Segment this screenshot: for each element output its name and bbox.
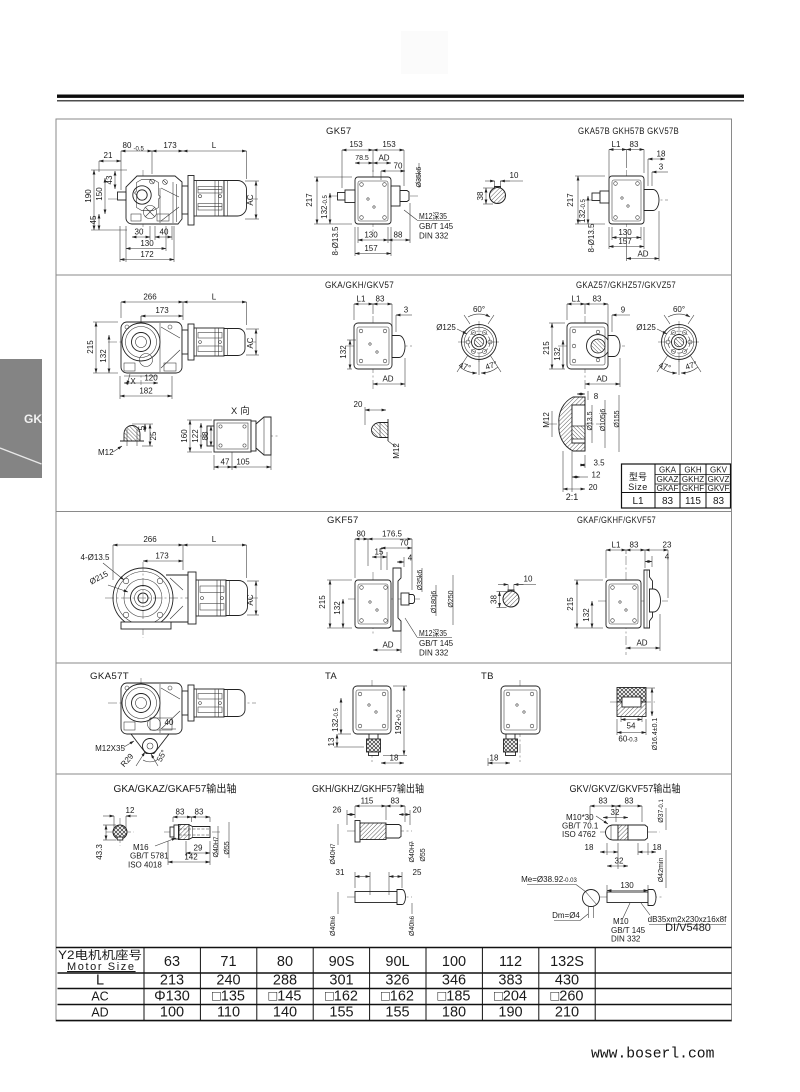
svg-text:Motor Size: Motor Size	[67, 961, 136, 973]
svg-text:M12: M12	[392, 443, 401, 459]
svg-text:GKA: GKA	[659, 466, 677, 475]
svg-text:Ø40H7: Ø40H7	[213, 836, 220, 858]
svg-text:Size: Size	[628, 482, 648, 492]
svg-text:GKA/GKAZ/GKAF57输出轴: GKA/GKAZ/GKAF57输出轴	[114, 782, 237, 795]
svg-text:83: 83	[662, 496, 674, 507]
svg-text:Ø42min: Ø42min	[658, 858, 665, 883]
svg-text:301: 301	[329, 973, 353, 989]
svg-text:326: 326	[385, 973, 409, 989]
svg-text:Ø35k6: Ø35k6	[417, 570, 424, 591]
svg-text:X 向: X 向	[231, 405, 250, 417]
svg-text:15: 15	[375, 548, 384, 557]
svg-text:25: 25	[413, 868, 422, 877]
svg-text:L: L	[212, 293, 217, 302]
svg-text:GKAF: GKAF	[657, 484, 679, 493]
svg-text:M12X35: M12X35	[95, 744, 125, 753]
svg-text:157: 157	[618, 237, 632, 246]
svg-text:5: 5	[138, 425, 147, 430]
svg-text:132: 132	[582, 608, 591, 622]
svg-text:173: 173	[155, 552, 169, 561]
svg-text:GKAZ57/GKHZ57/GKVZ57: GKAZ57/GKHZ57/GKVZ57	[576, 280, 676, 291]
svg-text:31: 31	[336, 868, 345, 877]
svg-text:Ø125: Ø125	[436, 323, 456, 332]
svg-text:AD: AD	[378, 154, 389, 163]
svg-text:L: L	[212, 535, 217, 544]
svg-text:TA: TA	[325, 671, 337, 682]
svg-text:83: 83	[376, 295, 385, 304]
svg-text:Ø35k6: Ø35k6	[416, 167, 423, 188]
svg-text:80: 80	[277, 954, 293, 970]
svg-text:DIN 332: DIN 332	[611, 935, 641, 944]
svg-text:20: 20	[589, 483, 598, 492]
svg-text:240: 240	[216, 973, 240, 989]
svg-text:Ø37-0.1: Ø37-0.1	[658, 799, 665, 823]
svg-text:18: 18	[657, 150, 666, 159]
svg-text:GKVF: GKVF	[708, 484, 730, 493]
svg-text:L1: L1	[572, 295, 581, 304]
svg-text:12: 12	[126, 806, 135, 815]
svg-text:GKA/GKH/GKV57: GKA/GKH/GKV57	[325, 280, 394, 291]
svg-text:172: 172	[140, 250, 154, 259]
svg-text:2:1: 2:1	[566, 492, 579, 502]
svg-text:ISO 4018: ISO 4018	[128, 861, 162, 870]
svg-text:173: 173	[163, 141, 177, 150]
svg-text:4-Ø13.5: 4-Ø13.5	[81, 553, 110, 562]
svg-text:10: 10	[510, 171, 519, 180]
svg-text:18: 18	[585, 843, 594, 852]
svg-text:32: 32	[615, 857, 624, 866]
svg-text:Ø105j6: Ø105j6	[600, 409, 607, 432]
svg-text:115: 115	[685, 496, 701, 507]
svg-text:88: 88	[201, 431, 210, 440]
svg-text:3: 3	[404, 306, 409, 315]
svg-text:AD: AD	[91, 1006, 108, 1020]
svg-text:20: 20	[354, 400, 363, 409]
svg-text:43.3: 43.3	[95, 844, 104, 860]
svg-text:AC: AC	[246, 194, 255, 205]
svg-text:AC: AC	[246, 337, 255, 348]
svg-text:型号: 型号	[629, 472, 647, 482]
svg-text:13: 13	[327, 737, 336, 746]
svg-text:215: 215	[542, 341, 551, 355]
svg-text:M12: M12	[98, 448, 114, 457]
svg-text:88: 88	[394, 231, 403, 240]
svg-text:182: 182	[139, 387, 153, 396]
svg-text:3.5: 3.5	[593, 459, 605, 468]
svg-text:Ø125: Ø125	[636, 323, 656, 332]
svg-text:153: 153	[349, 140, 363, 149]
svg-text:70: 70	[394, 162, 403, 171]
svg-text:4: 4	[408, 554, 413, 563]
svg-text:160: 160	[180, 429, 189, 443]
svg-text:L1: L1	[632, 496, 644, 507]
svg-text:-0.5: -0.5	[134, 147, 145, 153]
svg-text:266: 266	[143, 535, 157, 544]
svg-text:90L: 90L	[385, 954, 409, 970]
svg-text:DIN 332: DIN 332	[419, 649, 449, 658]
svg-text:8-Ø13.5: 8-Ø13.5	[587, 223, 596, 252]
svg-text:Ø40H7: Ø40H7	[330, 843, 337, 865]
svg-text:346: 346	[442, 973, 466, 989]
svg-text:21: 21	[104, 151, 113, 160]
svg-text:155: 155	[385, 1005, 409, 1021]
svg-text:AD: AD	[382, 641, 393, 650]
svg-text:54: 54	[627, 722, 636, 731]
svg-text:105: 105	[236, 458, 250, 467]
svg-text:122: 122	[191, 429, 200, 443]
svg-text:Ø55: Ø55	[420, 848, 427, 861]
svg-text:176.5: 176.5	[382, 530, 403, 539]
svg-text:70: 70	[400, 539, 409, 548]
svg-text:130: 130	[618, 228, 632, 237]
svg-text:GKV/GKVZ/GKVF57输出轴: GKV/GKVZ/GKVF57输出轴	[570, 782, 681, 795]
svg-text:130: 130	[364, 231, 378, 240]
svg-text:83: 83	[630, 140, 639, 149]
svg-text:153: 153	[382, 140, 396, 149]
svg-text:155: 155	[329, 1005, 353, 1021]
svg-text:60°: 60°	[473, 305, 485, 314]
svg-text:100: 100	[160, 1005, 184, 1021]
svg-text:43: 43	[105, 175, 114, 184]
svg-text:110: 110	[217, 1005, 240, 1021]
svg-text:Ø13.5: Ø13.5	[587, 411, 594, 430]
svg-text:132: 132	[339, 345, 348, 359]
svg-text:Φ130: Φ130	[154, 989, 190, 1005]
svg-text:142: 142	[184, 853, 198, 862]
svg-text:□162: □162	[381, 989, 414, 1005]
svg-text:GKV: GKV	[710, 466, 728, 475]
svg-text:80: 80	[357, 530, 366, 539]
svg-text:25: 25	[149, 431, 158, 440]
svg-text:GK: GK	[24, 412, 42, 426]
svg-text:60°: 60°	[673, 305, 685, 314]
svg-text:AD: AD	[637, 250, 648, 259]
svg-text:83: 83	[176, 808, 185, 817]
svg-text:30: 30	[135, 228, 144, 237]
svg-text:120: 120	[144, 374, 158, 383]
svg-text:83: 83	[195, 808, 204, 817]
svg-text:GKH/GKHZ/GKHF57输出轴: GKH/GKHZ/GKHF57输出轴	[312, 782, 424, 795]
svg-text:AD: AD	[636, 639, 647, 648]
svg-text:140: 140	[273, 1005, 297, 1021]
svg-text:47: 47	[221, 458, 230, 467]
svg-text:AD: AD	[382, 375, 393, 384]
svg-text:130: 130	[620, 881, 634, 890]
svg-text:18: 18	[490, 754, 499, 763]
svg-text:45: 45	[89, 215, 98, 224]
svg-text:18: 18	[390, 754, 399, 763]
svg-text:GKVZ: GKVZ	[708, 475, 730, 484]
svg-text:40: 40	[165, 718, 174, 727]
svg-text:20: 20	[413, 806, 422, 815]
svg-text:8: 8	[594, 392, 599, 401]
svg-text:GKA57B GKH57B GKV57B: GKA57B GKH57B GKV57B	[578, 126, 679, 137]
svg-text:83: 83	[713, 496, 725, 507]
svg-text:115: 115	[361, 797, 374, 806]
svg-text:Ø16.4±0.1: Ø16.4±0.1	[652, 718, 659, 751]
svg-text:Ø180j6: Ø180j6	[431, 591, 438, 614]
svg-text:□204: □204	[494, 989, 527, 1005]
svg-text:71: 71	[220, 954, 236, 970]
svg-text:M12: M12	[542, 412, 551, 428]
svg-text:83: 83	[630, 541, 639, 550]
svg-text:12: 12	[592, 471, 601, 480]
svg-text:GB/T 5781: GB/T 5781	[130, 852, 169, 861]
svg-text:□135: □135	[212, 989, 245, 1005]
svg-text:132S: 132S	[550, 954, 584, 970]
svg-text:23: 23	[663, 541, 672, 550]
svg-text:83: 83	[593, 295, 602, 304]
svg-text:83: 83	[625, 797, 634, 806]
svg-text:GKA57T: GKA57T	[90, 671, 129, 682]
svg-text:217: 217	[305, 193, 314, 207]
svg-text:213: 213	[160, 973, 184, 989]
svg-text:□145: □145	[269, 989, 302, 1005]
svg-text:GKHZ: GKHZ	[682, 475, 704, 484]
svg-text:Y2电机机座号: Y2电机机座号	[58, 948, 142, 962]
svg-text:GB/T 145: GB/T 145	[419, 639, 454, 648]
svg-text:430: 430	[555, 973, 579, 989]
svg-text:132: 132	[553, 347, 562, 361]
svg-text:215: 215	[566, 597, 575, 611]
svg-text:9: 9	[621, 306, 626, 315]
svg-text:DI/V5480: DI/V5480	[665, 922, 711, 934]
svg-text:132: 132	[99, 349, 108, 363]
svg-text:L: L	[212, 141, 217, 150]
svg-text:173: 173	[155, 306, 169, 315]
svg-text:□260: □260	[551, 989, 584, 1005]
svg-text:40: 40	[160, 228, 169, 237]
svg-text:383: 383	[498, 973, 522, 989]
svg-text:217: 217	[566, 193, 575, 207]
svg-text:180: 180	[442, 1005, 466, 1021]
svg-text:18: 18	[653, 843, 662, 852]
svg-text:AD: AD	[596, 375, 607, 384]
svg-text:Ø40h6: Ø40h6	[330, 915, 337, 936]
svg-text:□185: □185	[438, 989, 471, 1005]
svg-text:8-Ø13.5: 8-Ø13.5	[331, 226, 340, 255]
svg-text:83: 83	[599, 797, 608, 806]
svg-text:3: 3	[659, 163, 664, 172]
svg-text:L1: L1	[357, 295, 366, 304]
svg-text:L1: L1	[612, 140, 621, 149]
svg-text:4: 4	[665, 553, 670, 562]
svg-text:M10: M10	[613, 917, 629, 926]
svg-text:26: 26	[333, 806, 342, 815]
svg-text:29: 29	[194, 844, 203, 853]
svg-text:190: 190	[498, 1005, 522, 1021]
svg-text:L1: L1	[612, 541, 621, 550]
svg-text:GKAZ: GKAZ	[657, 475, 679, 484]
svg-text:78.5: 78.5	[355, 155, 369, 162]
svg-text:157: 157	[364, 244, 378, 253]
svg-text:10: 10	[524, 575, 533, 584]
svg-text:GKH: GKH	[684, 466, 702, 475]
svg-text:DIN 332: DIN 332	[419, 232, 449, 241]
svg-text:190: 190	[84, 189, 93, 203]
svg-text:□162: □162	[325, 989, 358, 1005]
svg-text:GK57: GK57	[326, 126, 352, 137]
svg-text:215: 215	[318, 595, 327, 609]
svg-text:Ø250: Ø250	[448, 590, 455, 607]
svg-text:38: 38	[490, 595, 499, 604]
svg-text:Ø155: Ø155	[614, 410, 621, 427]
svg-text:90S: 90S	[329, 954, 355, 970]
svg-text:AC: AC	[91, 990, 108, 1004]
svg-text:ISO 4762: ISO 4762	[562, 830, 596, 839]
svg-text:M12深35: M12深35	[419, 629, 447, 638]
svg-text:GKAF/GKHF/GKVF57: GKAF/GKHF/GKVF57	[577, 515, 656, 526]
svg-text:GKF57: GKF57	[327, 515, 359, 526]
svg-text:100: 100	[442, 954, 466, 970]
svg-text:266: 266	[143, 293, 157, 302]
svg-text:80: 80	[123, 141, 132, 150]
svg-text:112: 112	[499, 954, 522, 970]
svg-text:X: X	[130, 377, 136, 386]
svg-text:TB: TB	[481, 671, 494, 682]
svg-text:www.boserl.com: www.boserl.com	[591, 1047, 715, 1063]
svg-text:288: 288	[273, 973, 297, 989]
svg-text:210: 210	[555, 1005, 579, 1021]
svg-text:Dm=Ø4: Dm=Ø4	[552, 911, 580, 920]
svg-text:GKHF: GKHF	[682, 484, 704, 493]
svg-text:AC: AC	[246, 594, 255, 605]
svg-text:L: L	[96, 973, 104, 989]
svg-text:GB/T 145: GB/T 145	[419, 222, 454, 231]
svg-text:63: 63	[164, 954, 180, 970]
svg-text:132: 132	[333, 601, 342, 615]
svg-text:150: 150	[95, 187, 104, 201]
svg-text:32: 32	[611, 808, 620, 817]
svg-text:38: 38	[476, 191, 485, 200]
svg-text:83: 83	[391, 797, 400, 806]
svg-text:Ø55: Ø55	[224, 841, 231, 854]
svg-text:Ø40H7: Ø40H7	[409, 841, 416, 863]
svg-text:215: 215	[86, 340, 95, 354]
svg-text:M12深35: M12深35	[419, 212, 447, 221]
svg-text:Ø40h6: Ø40h6	[409, 915, 416, 936]
svg-text:130: 130	[140, 239, 154, 248]
